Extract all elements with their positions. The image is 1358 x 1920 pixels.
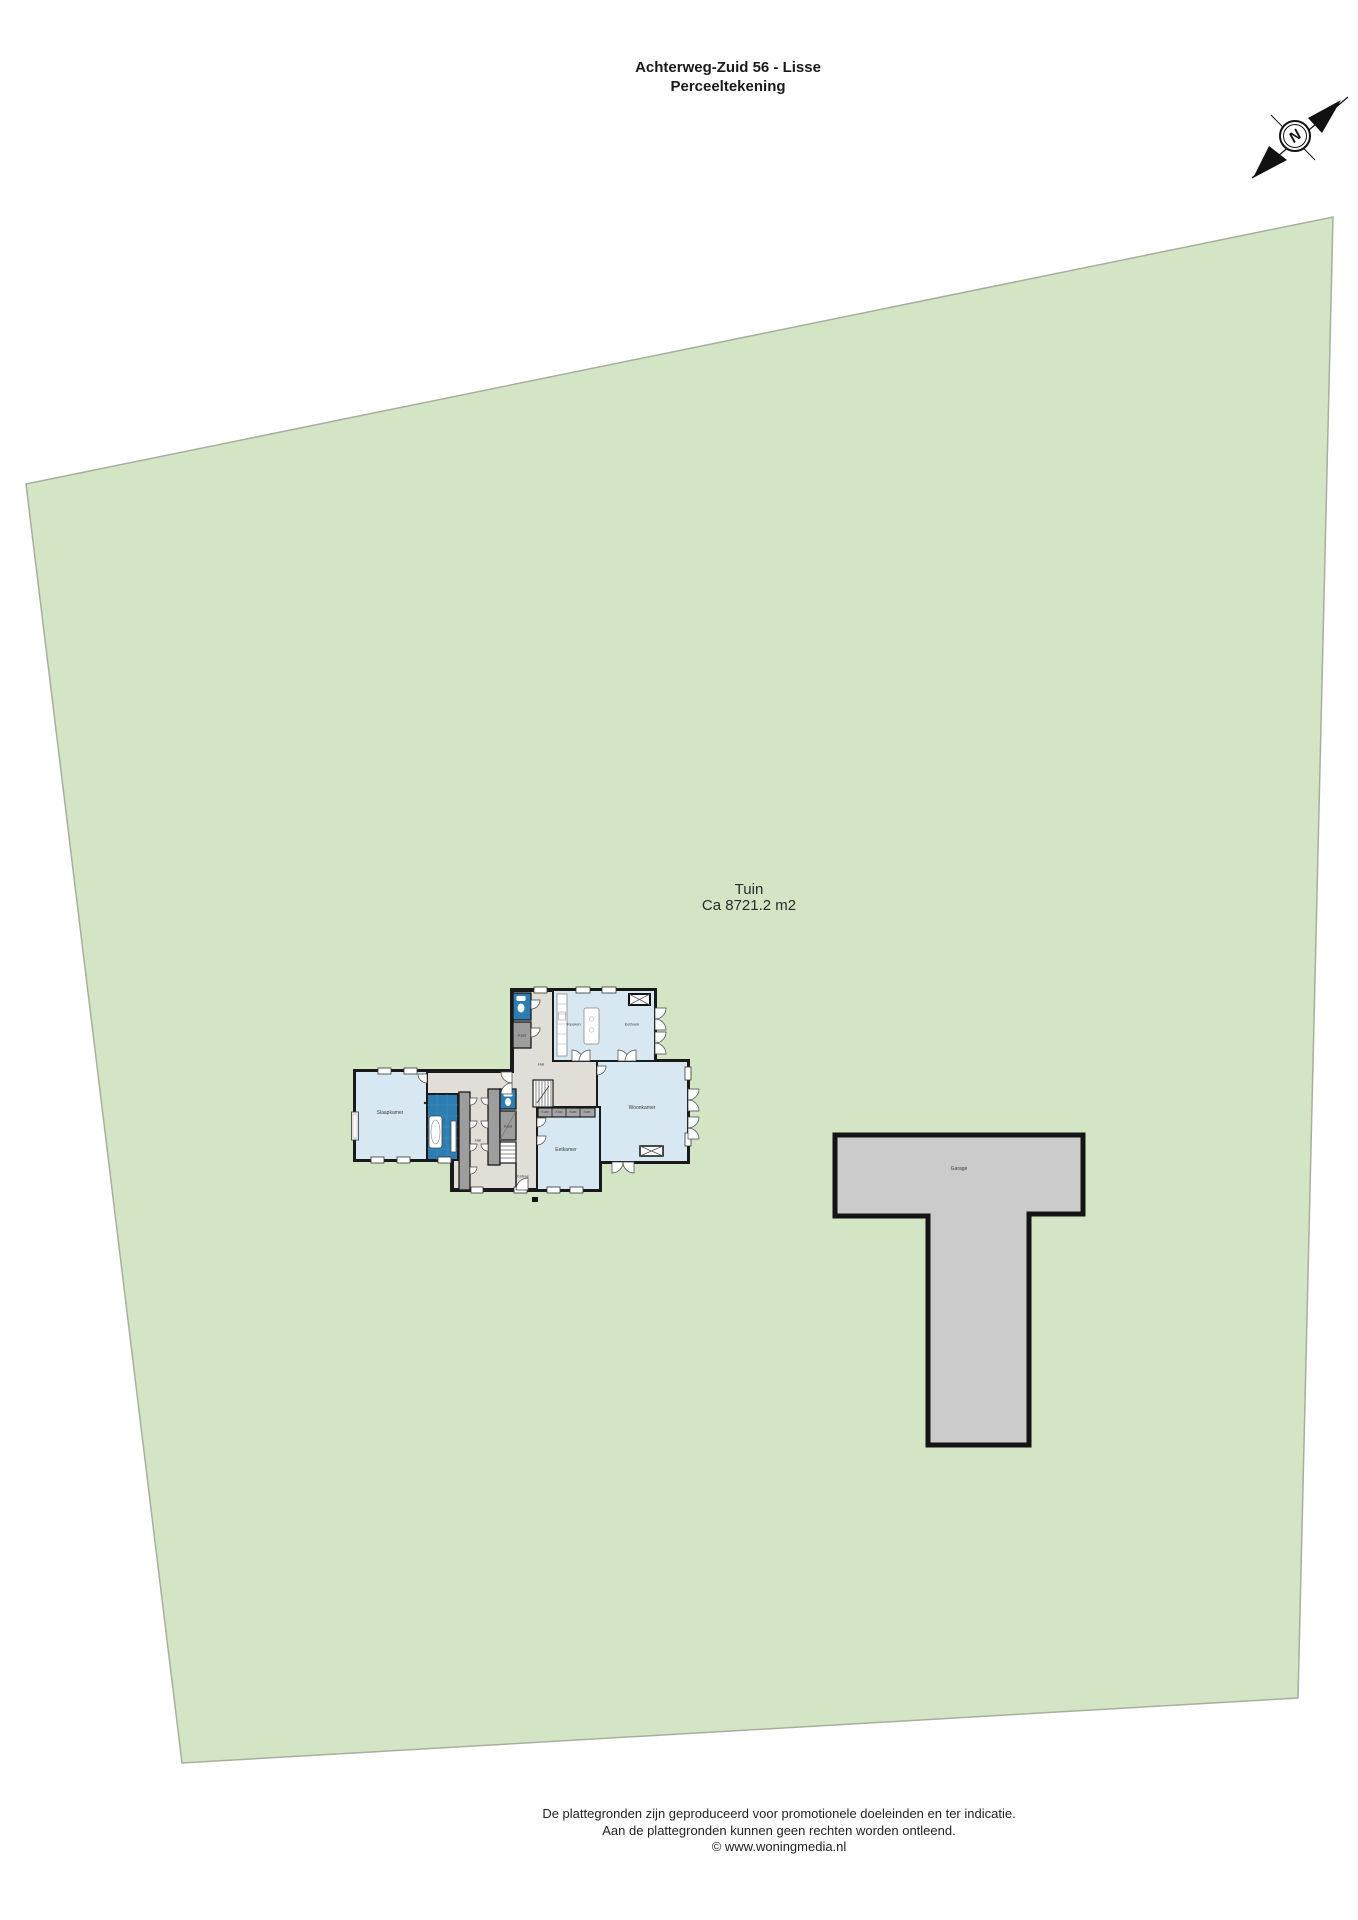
kitchen-island bbox=[584, 1008, 599, 1044]
label-kast-mid: Kast bbox=[504, 1124, 512, 1129]
tuin-area-label: Tuin Ca 8721.2 m2 bbox=[702, 882, 796, 914]
label-hal-left: Hal bbox=[475, 1138, 481, 1143]
perceeltekening-canvas: N Achterweg-Zuid 56 - Lisse Perceelteken… bbox=[0, 0, 1358, 1920]
page-title: Achterweg-Zuid 56 - Lisse Perceeltekenin… bbox=[635, 58, 821, 96]
compass-south-arrow bbox=[1253, 146, 1287, 178]
parcel-polygon bbox=[26, 217, 1333, 1763]
wardrobe-strip-right bbox=[488, 1089, 500, 1165]
wardrobe-strip-left bbox=[459, 1092, 470, 1190]
label-kast-row-1: Kast bbox=[541, 1110, 548, 1114]
site-plan-drawing: N bbox=[0, 0, 1358, 1920]
label-keuken: Keuken bbox=[567, 1022, 581, 1027]
shower-screen bbox=[451, 1121, 456, 1152]
threshold-marker bbox=[532, 1197, 538, 1202]
title-subtitle: Perceeltekening bbox=[635, 77, 821, 96]
label-kast-top: Kast bbox=[518, 1033, 526, 1038]
skylight-keuken bbox=[629, 994, 650, 1005]
garage-label: Garage bbox=[951, 1166, 968, 1172]
footer-line-3: © www.woningmedia.nl bbox=[542, 1839, 1015, 1856]
label-kast-row-4: Kast bbox=[583, 1110, 590, 1114]
title-address: Achterweg-Zuid 56 - Lisse bbox=[635, 58, 821, 77]
footer-line-2: Aan de plattegronden kunnen geen rechten… bbox=[542, 1823, 1015, 1840]
bathtub bbox=[429, 1116, 442, 1148]
label-eetkamer: Eetkamer bbox=[555, 1147, 576, 1153]
label-slaapkamer: Slaapkamer bbox=[377, 1110, 404, 1116]
label-kast-row-2: Kast bbox=[555, 1110, 562, 1114]
label-entree: Entree bbox=[517, 1174, 529, 1179]
stairs-main bbox=[533, 1080, 553, 1107]
tuin-area: Ca 8721.2 m2 bbox=[702, 898, 796, 914]
label-eethoek: Eethoek bbox=[625, 1022, 640, 1027]
footer-disclaimer: De plattegronden zijn geproduceerd voor … bbox=[542, 1806, 1015, 1856]
compass-rose: N bbox=[1252, 97, 1348, 178]
stairs-secondary bbox=[500, 1142, 516, 1163]
compass-north-arrow bbox=[1308, 100, 1341, 133]
label-woonkamer: Woonkamer bbox=[629, 1105, 656, 1111]
tuin-name: Tuin bbox=[702, 882, 796, 898]
faucet-dot bbox=[424, 1102, 426, 1104]
bedroom-left-window bbox=[352, 1112, 359, 1140]
skylight-woonkamer bbox=[640, 1146, 663, 1156]
footer-line-1: De plattegronden zijn geproduceerd voor … bbox=[542, 1806, 1015, 1823]
label-hal-top: Hal bbox=[538, 1062, 544, 1067]
label-kast-row-3: Kast bbox=[569, 1110, 576, 1114]
kitchen-counter bbox=[557, 994, 567, 1056]
